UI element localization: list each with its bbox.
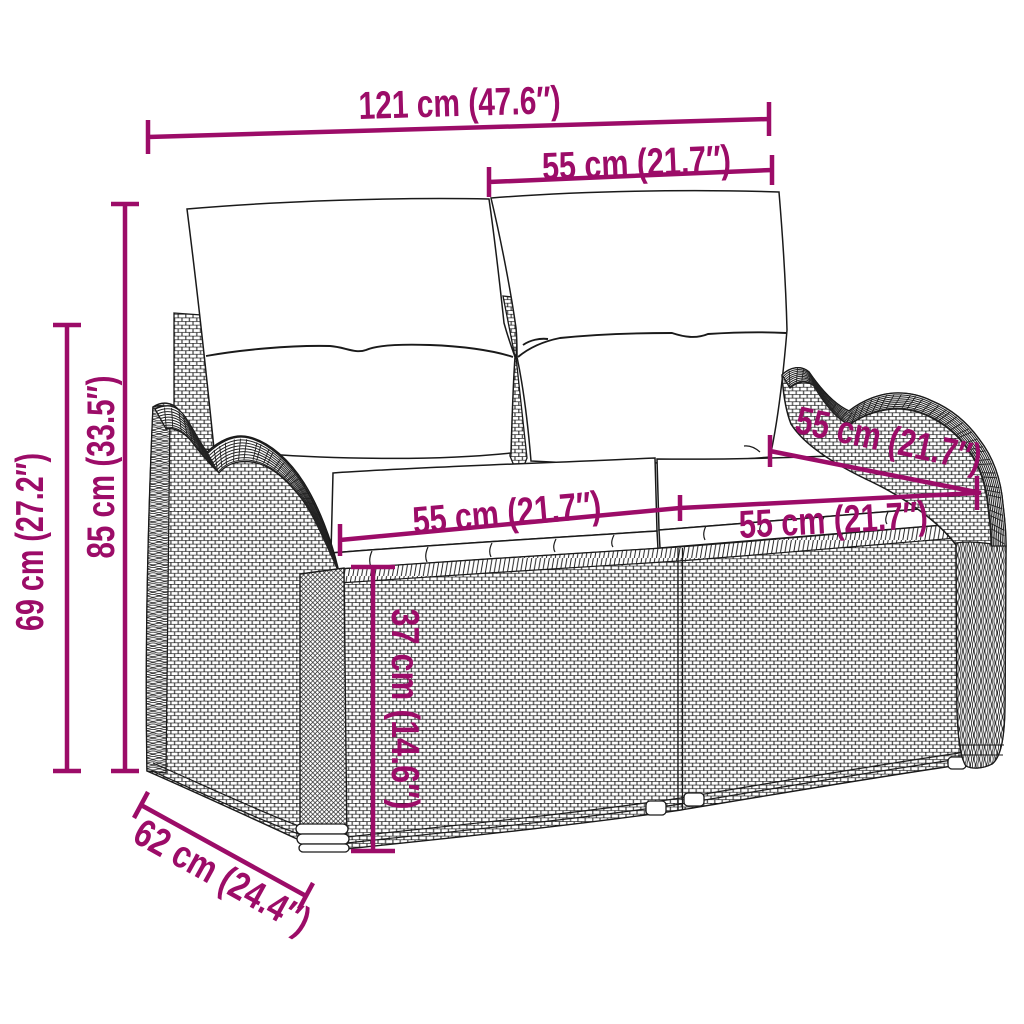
svg-text:85 cm (33.5″): 85 cm (33.5″): [80, 376, 123, 559]
svg-text:55 cm (21.7″): 55 cm (21.7″): [541, 138, 732, 189]
svg-text:69 cm (27.2″): 69 cm (27.2″): [9, 453, 52, 631]
svg-text:37 cm (14.6″): 37 cm (14.6″): [383, 609, 426, 810]
svg-text:121 cm (47.6″): 121 cm (47.6″): [358, 79, 561, 128]
